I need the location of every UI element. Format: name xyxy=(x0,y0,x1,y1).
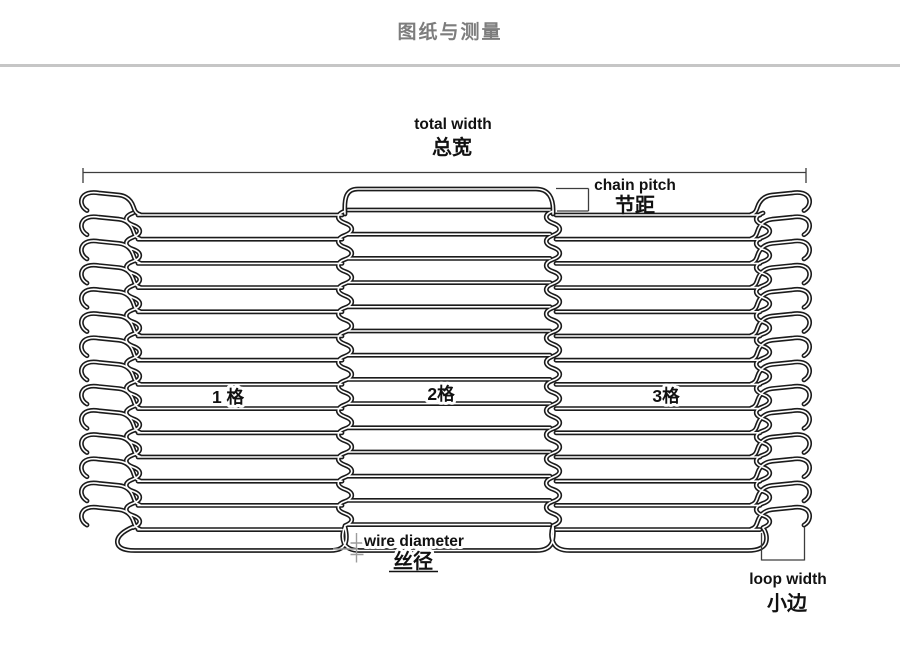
chain-pitch-bracket xyxy=(556,189,589,212)
wire-diameter-label-en: wire diameter xyxy=(363,533,464,550)
mesh-wire-core xyxy=(81,189,809,551)
chain-pitch-label-zh: 节距 xyxy=(615,193,655,217)
belt-mesh-diagram: total width 总宽 chain pitch 节距 1 格 2格 3格 … xyxy=(0,0,900,663)
total-width-dimension-line xyxy=(83,168,806,183)
section-2-label: 2格 xyxy=(427,384,455,404)
total-width-label-en: total width xyxy=(414,116,492,133)
page: 图纸与测量 total width 总宽 chain pitch 节距 1 格 … xyxy=(0,0,900,663)
loop-width-label-en: loop width xyxy=(749,571,826,588)
mesh-wire-outline xyxy=(81,189,809,551)
loop-width-label-zh: 小边 xyxy=(767,592,808,615)
total-width-label-zh: 总宽 xyxy=(432,135,472,159)
wire-diameter-label-zh: 丝径 xyxy=(393,549,433,573)
mesh-wires xyxy=(81,189,809,551)
chain-pitch-label-en: chain pitch xyxy=(594,177,676,194)
section-3-label: 3格 xyxy=(652,386,680,406)
section-1-label: 1 格 xyxy=(212,387,245,407)
